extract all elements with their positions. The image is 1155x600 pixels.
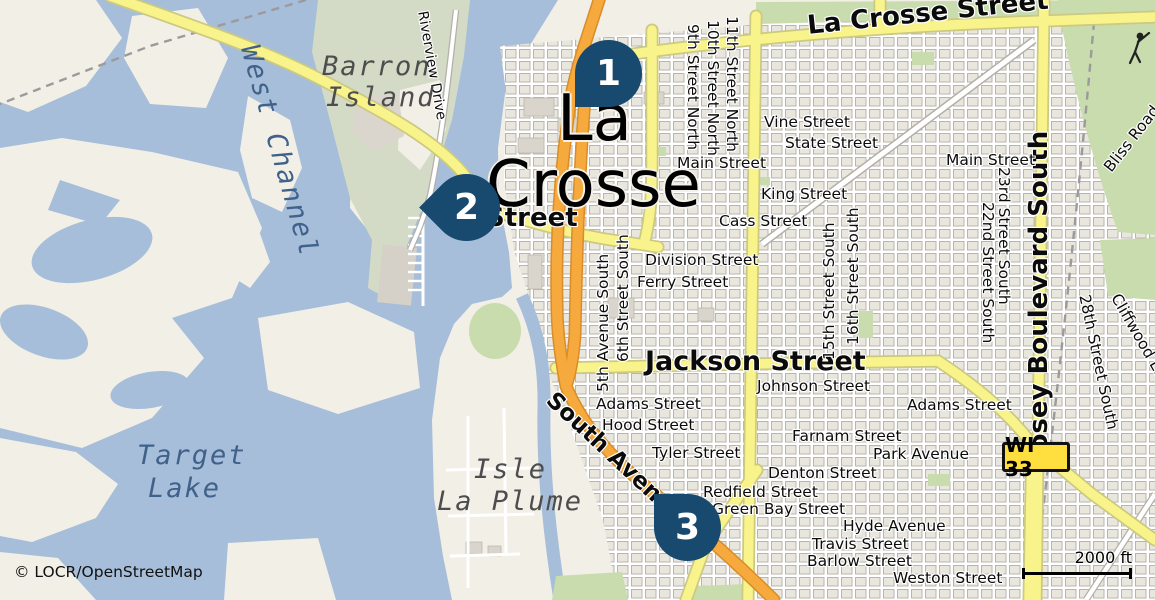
route-badge-label: WI 33 xyxy=(1005,433,1067,481)
attribution-text: © LOCR/OpenStreetMap xyxy=(14,563,203,581)
scale-bar-label: 2000 ft xyxy=(1022,548,1132,567)
map-pin-number: 1 xyxy=(596,53,621,94)
map-canvas[interactable]: LaCrosseLa Crosse StreetStreetJackson St… xyxy=(0,0,1155,600)
route-badge-wi33: WI 33 xyxy=(1002,442,1070,472)
map-pin-number: 2 xyxy=(454,187,479,228)
map-pin-number: 3 xyxy=(675,507,700,548)
map-pin-3[interactable]: 3 xyxy=(654,494,721,561)
map-pin-2[interactable]: 2 xyxy=(419,160,514,255)
map-pin-1[interactable]: 1 xyxy=(575,40,642,107)
map-markers: 1 2 3 xyxy=(0,0,1155,600)
scale-bar xyxy=(1022,572,1132,575)
